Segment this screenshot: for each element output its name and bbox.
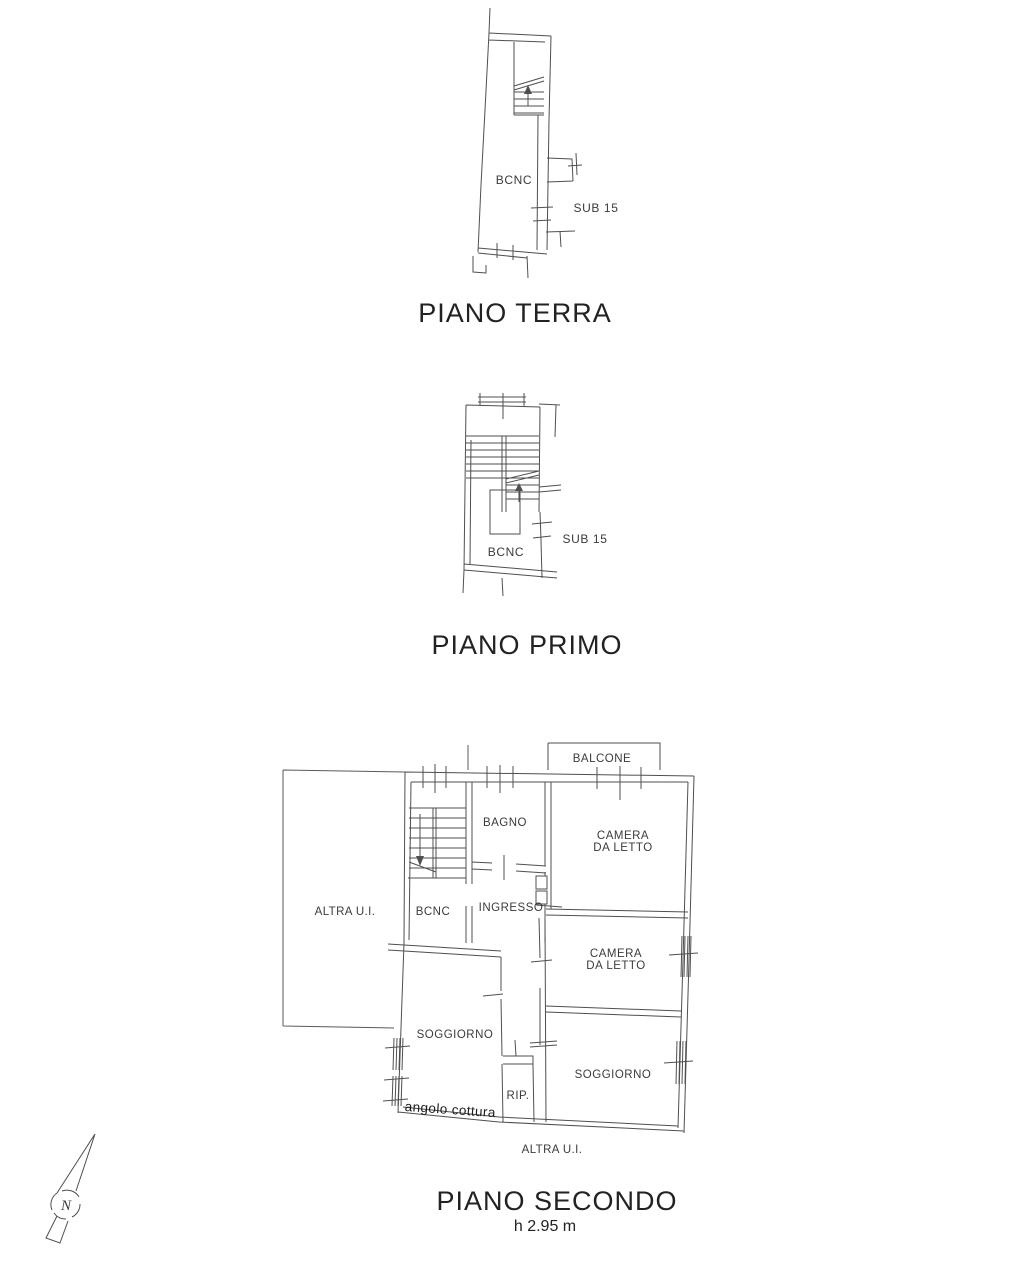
north-compass-icon: N bbox=[46, 1134, 95, 1243]
floor-height-note: h 2.95 m bbox=[514, 1218, 576, 1235]
compass-north-letter: N bbox=[60, 1198, 72, 1214]
secondo-stair-direction-arrow bbox=[416, 856, 424, 866]
terra-right-details bbox=[531, 153, 582, 247]
room-label-camera1-line1: CAMERA bbox=[597, 830, 649, 842]
terra-room-label-bcnc: BCNC bbox=[496, 173, 532, 187]
room-label-soggiorno-right: SOGGIORNO bbox=[575, 1069, 652, 1081]
floorplan-drawing: BCNC SUB 15 PIANO TERRA BCNC SUB 15 PIAN… bbox=[0, 0, 1032, 1280]
room-label-camera2-line1: CAMERA bbox=[590, 948, 642, 960]
floor-title-terra: PIANO TERRA bbox=[418, 298, 612, 328]
floor-plan-primo: BCNC SUB 15 PIANO PRIMO bbox=[431, 393, 622, 660]
terra-stairs bbox=[514, 42, 544, 115]
room-label-angolo-cottura: angolo cottura bbox=[404, 1099, 496, 1120]
floor-plan-terra: BCNC SUB 15 PIANO TERRA bbox=[418, 8, 618, 328]
secondo-boundary-lines bbox=[283, 745, 468, 1028]
floor-title-secondo: PIANO SECONDO bbox=[436, 1186, 677, 1216]
label-altra-ui-left: ALTRA U.I. bbox=[315, 906, 376, 918]
terra-sub-label: SUB 15 bbox=[574, 201, 619, 215]
primo-stair-direction-arrow bbox=[515, 483, 523, 491]
terra-walls bbox=[473, 8, 551, 278]
primo-stairs bbox=[466, 436, 539, 534]
floor-plan-secondo: BALCONE BAGNO CAMERA DA LETTO INGRESSO B… bbox=[283, 743, 698, 1235]
primo-walls bbox=[463, 404, 561, 596]
room-label-rip: RIP. bbox=[507, 1090, 530, 1102]
secondo-stairs bbox=[408, 808, 466, 878]
room-label-camera2-line2: DA LETTO bbox=[586, 960, 645, 972]
room-label-camera1-line2: DA LETTO bbox=[593, 842, 652, 854]
floor-title-primo: PIANO PRIMO bbox=[431, 630, 622, 660]
primo-room-label-bcnc: BCNC bbox=[488, 545, 524, 559]
room-label-soggiorno-left: SOGGIORNO bbox=[417, 1029, 494, 1041]
room-label-bcnc-secondo: BCNC bbox=[416, 906, 451, 918]
compass-needle bbox=[46, 1134, 95, 1243]
cadastral-sheet: BCNC SUB 15 PIANO TERRA BCNC SUB 15 PIAN… bbox=[0, 0, 1032, 1280]
primo-sub-label: SUB 15 bbox=[563, 532, 608, 546]
room-label-bagno: BAGNO bbox=[483, 817, 527, 829]
room-label-ingresso: INGRESSO bbox=[479, 902, 544, 914]
label-altra-ui-bottom: ALTRA U.I. bbox=[522, 1144, 583, 1156]
room-label-balcone: BALCONE bbox=[573, 753, 631, 765]
